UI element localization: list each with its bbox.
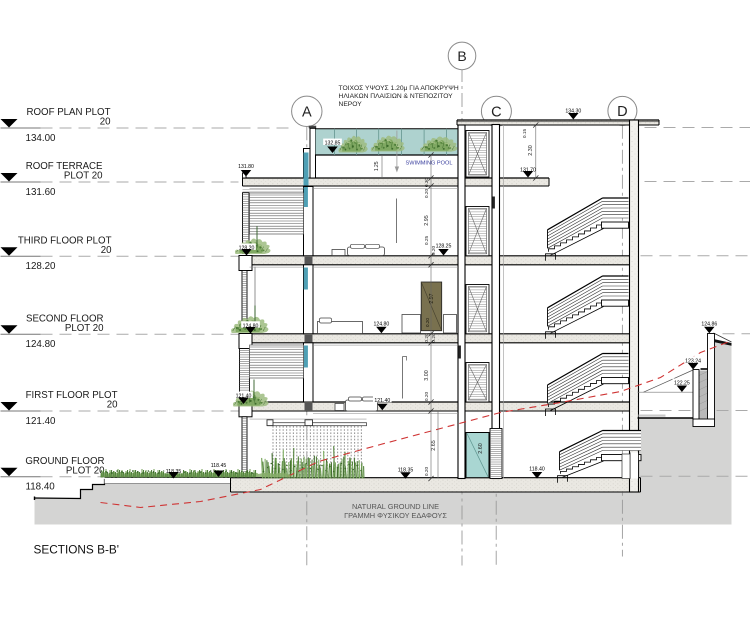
svg-text:THIRD FLOOR PLOT: THIRD FLOOR PLOT: [18, 235, 112, 246]
svg-text:118.40: 118.40: [529, 466, 545, 472]
svg-text:2.30: 2.30: [528, 145, 534, 156]
svg-text:C: C: [491, 105, 501, 121]
svg-text:128.20: 128.20: [26, 261, 57, 272]
svg-text:20: 20: [100, 117, 111, 128]
svg-text:134.00: 134.00: [26, 133, 57, 144]
svg-text:ΤΟΙΧΟΣ ΥΨΟΥΣ 1.20μ ΓΙΑ ΑΠΟΚΡΥΨ: ΤΟΙΧΟΣ ΥΨΟΥΣ 1.20μ ΓΙΑ ΑΠΟΚΡΥΨΗ: [339, 85, 459, 92]
svg-text:3.00: 3.00: [424, 370, 430, 381]
svg-text:SECTIONS B-B': SECTIONS B-B': [34, 543, 120, 557]
svg-text:ΗΛΙΑΚΩΝ ΠΛΑΙΣΙΩΝ & ΝΤΕΠΟΖΙΤΟΥ: ΗΛΙΑΚΩΝ ΠΛΑΙΣΙΩΝ & ΝΤΕΠΟΖΙΤΟΥ: [339, 93, 454, 100]
svg-text:20: 20: [101, 245, 112, 256]
svg-text:0.15: 0.15: [522, 129, 528, 139]
svg-text:131.60: 131.60: [26, 187, 57, 198]
svg-text:1.25: 1.25: [374, 161, 380, 171]
svg-text:0.20: 0.20: [424, 392, 430, 402]
svg-text:0.20: 0.20: [431, 246, 437, 256]
svg-text:SWIMMING POOL: SWIMMING POOL: [406, 161, 453, 167]
svg-text:FIRST FLOOR PLOT: FIRST FLOOR PLOT: [26, 390, 118, 401]
svg-text:B: B: [457, 48, 466, 64]
svg-text:0.20: 0.20: [424, 189, 430, 199]
svg-text:0.20: 0.20: [425, 318, 430, 327]
svg-text:NATURAL GROUND LINE: NATURAL GROUND LINE: [352, 502, 439, 511]
svg-text:20: 20: [107, 400, 118, 411]
svg-text:ROOF PLAN PLOT: ROOF PLAN PLOT: [27, 107, 111, 118]
svg-text:124.80: 124.80: [26, 339, 57, 350]
svg-text:0.30: 0.30: [424, 178, 430, 188]
svg-text:0.20: 0.20: [431, 333, 437, 343]
svg-text:118.40: 118.40: [26, 482, 56, 493]
svg-text:PLOT 20: PLOT 20: [66, 465, 105, 476]
svg-text:0.25: 0.25: [424, 236, 430, 246]
svg-text:121.40: 121.40: [374, 398, 390, 404]
svg-text:2.97: 2.97: [429, 293, 435, 303]
svg-text:2.65: 2.65: [431, 440, 437, 451]
svg-text:2.60: 2.60: [478, 443, 484, 454]
svg-text:121.40: 121.40: [26, 416, 57, 427]
svg-text:D: D: [617, 104, 627, 120]
svg-text:128.25: 128.25: [436, 243, 452, 249]
svg-text:131.80: 131.80: [238, 164, 254, 170]
svg-text:118.45: 118.45: [211, 463, 227, 469]
svg-text:124.86: 124.86: [701, 321, 717, 327]
svg-text:0.20: 0.20: [424, 467, 430, 477]
svg-text:2.95: 2.95: [424, 215, 430, 226]
svg-text:124.80: 124.80: [373, 322, 389, 328]
svg-text:ΝΕΡΟΥ: ΝΕΡΟΥ: [339, 101, 363, 108]
svg-text:ΓΡΑΜΜΗ ΦΥΣΙΚΟΥ ΕΔΑΦΟΥΣ: ΓΡΑΜΜΗ ΦΥΣΙΚΟΥ ΕΔΑΦΟΥΣ: [344, 511, 447, 520]
svg-text:A: A: [302, 105, 312, 121]
svg-text:PLOT 20: PLOT 20: [64, 171, 103, 182]
svg-text:132.85: 132.85: [325, 141, 341, 147]
svg-text:0.20: 0.20: [424, 333, 430, 343]
svg-text:PLOT 20: PLOT 20: [65, 323, 104, 334]
